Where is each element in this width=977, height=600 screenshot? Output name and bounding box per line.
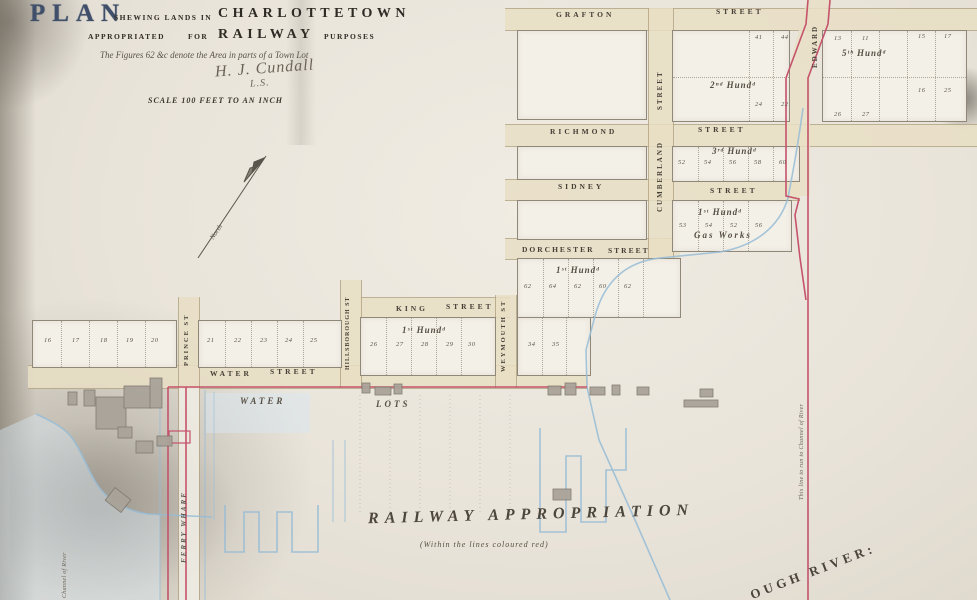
king-hundred-label: 1ˢᵗ Hundᵈ (402, 325, 446, 335)
lot-number: 27 (396, 341, 404, 348)
lot-number: 60 (599, 283, 607, 290)
ferry-wharf-label: FERRY WHARF (180, 491, 188, 563)
lot-number: 35 (552, 341, 560, 348)
lot-number: 58 (754, 159, 762, 166)
hillsborough-street-label: HILLSBOROUGH ST (345, 296, 351, 370)
title-shewing: SHEWING LANDS IN (114, 13, 212, 22)
lot-number: 54 (704, 159, 712, 166)
water-street-suffix: STREET (270, 367, 318, 376)
lot-number: 17 (72, 337, 80, 344)
hundred-3-label: 3ʳᵈ Hundᵈ (712, 146, 757, 156)
lot-number: 62 (624, 283, 632, 290)
gas-works-hundred-label: 1ˢᵗ Hundᵈ (698, 207, 742, 217)
cumberland-street-label: CUMBERLAND (656, 141, 664, 212)
title-city: CHARLOTTETOWN (218, 6, 410, 22)
lot-number: 13 (834, 35, 842, 42)
title-appropriated: APPROPRIATED (88, 32, 165, 41)
scale-note: SCALE 100 FEET TO AN INCH (148, 96, 283, 105)
lot-number: 64 (549, 283, 557, 290)
lot-number: 62 (574, 283, 582, 290)
lot-number: 20 (151, 337, 159, 344)
lot-number: 18 (100, 337, 108, 344)
lot-number: 26 (834, 111, 842, 118)
lot-number: 52 (730, 222, 738, 229)
lot-number: 41 (755, 34, 763, 41)
lot-number: 34 (528, 341, 536, 348)
lot-number: 60 (779, 159, 787, 166)
richmond-street-suffix: STREET (698, 125, 746, 134)
title-plan: PLAN (30, 0, 126, 28)
lot-number: 25 (310, 337, 318, 344)
sidney-street-label: SIDNEY (558, 182, 604, 191)
lot-number: 53 (679, 222, 687, 229)
water-lots-label-water: WATER (240, 396, 285, 406)
grafton-street-suffix: STREET (716, 7, 764, 16)
water-street-label: WATER (210, 369, 252, 378)
gas-works-label: Gas Works (694, 230, 752, 240)
map-canvas: PLAN SHEWING LANDS IN CHARLOTTETOWN APPR… (0, 0, 977, 600)
edward-street-label: EDWARD (811, 25, 819, 68)
lot-number: 22 (234, 337, 242, 344)
lot-number: 25 (944, 87, 952, 94)
lot-number: 23 (260, 337, 268, 344)
lot-number: 15 (918, 33, 926, 40)
lot-number: 29 (446, 341, 454, 348)
hundred-5-label: 5ᵗʰ Hundᵈ (842, 48, 886, 58)
water-lots-label-lots: LOTS (376, 399, 411, 409)
lot-number: 16 (44, 337, 52, 344)
prince-street-label: PRINCE ST (183, 314, 190, 367)
lot-number: 54 (705, 222, 713, 229)
title-purposes: PURPOSES (324, 32, 375, 41)
lot-number: 52 (678, 159, 686, 166)
dorchester-street-label: DORCHESTER (522, 245, 595, 254)
red-line-note: This line to run to Channel of River (799, 404, 805, 500)
lot-number: 62 (524, 283, 532, 290)
lot-number: 17 (944, 33, 952, 40)
sidney-street-suffix: STREET (710, 186, 758, 195)
water-lot-dividers (360, 395, 510, 515)
dorchester-hundred-label: 1ˢᵗ Hundᵈ (556, 265, 600, 275)
lot-number: 24 (755, 101, 763, 108)
north-arrow-icon (198, 156, 266, 258)
lot-number: 30 (468, 341, 476, 348)
lot-number: 28 (421, 341, 429, 348)
wharf-channel-note: Channel of River (62, 552, 68, 598)
railway-appropriation-subnote: (Within the lines coloured red) (420, 540, 549, 549)
title-railway: RAILWAY (218, 27, 315, 43)
lot-number: 26 (370, 341, 378, 348)
lot-number: 56 (755, 222, 763, 229)
cumberland-street-suffix: STREET (656, 70, 664, 110)
dorchester-street-suffix: STREET (608, 246, 650, 255)
weymouth-street-label: WEYMOUTH ST (500, 300, 507, 372)
richmond-street-label: RICHMOND (550, 127, 617, 136)
grafton-street-label: GRAFTON (556, 10, 614, 19)
lot-number: 21 (207, 337, 215, 344)
signature-suffix: L.S. (250, 77, 270, 89)
lot-number: 11 (862, 35, 869, 42)
hundred-2-label: 2ⁿᵈ Hundᵈ (710, 80, 756, 90)
lot-number: 27 (862, 111, 870, 118)
lot-number: 24 (285, 337, 293, 344)
king-street-suffix: STREET (446, 302, 494, 311)
king-street-label: KING (396, 304, 428, 313)
lot-number: 16 (918, 87, 926, 94)
lot-number: 19 (126, 337, 134, 344)
title-for: FOR (188, 32, 208, 41)
lot-number: 22 (781, 101, 789, 108)
lot-number: 44 (781, 34, 789, 41)
lot-number: 56 (729, 159, 737, 166)
